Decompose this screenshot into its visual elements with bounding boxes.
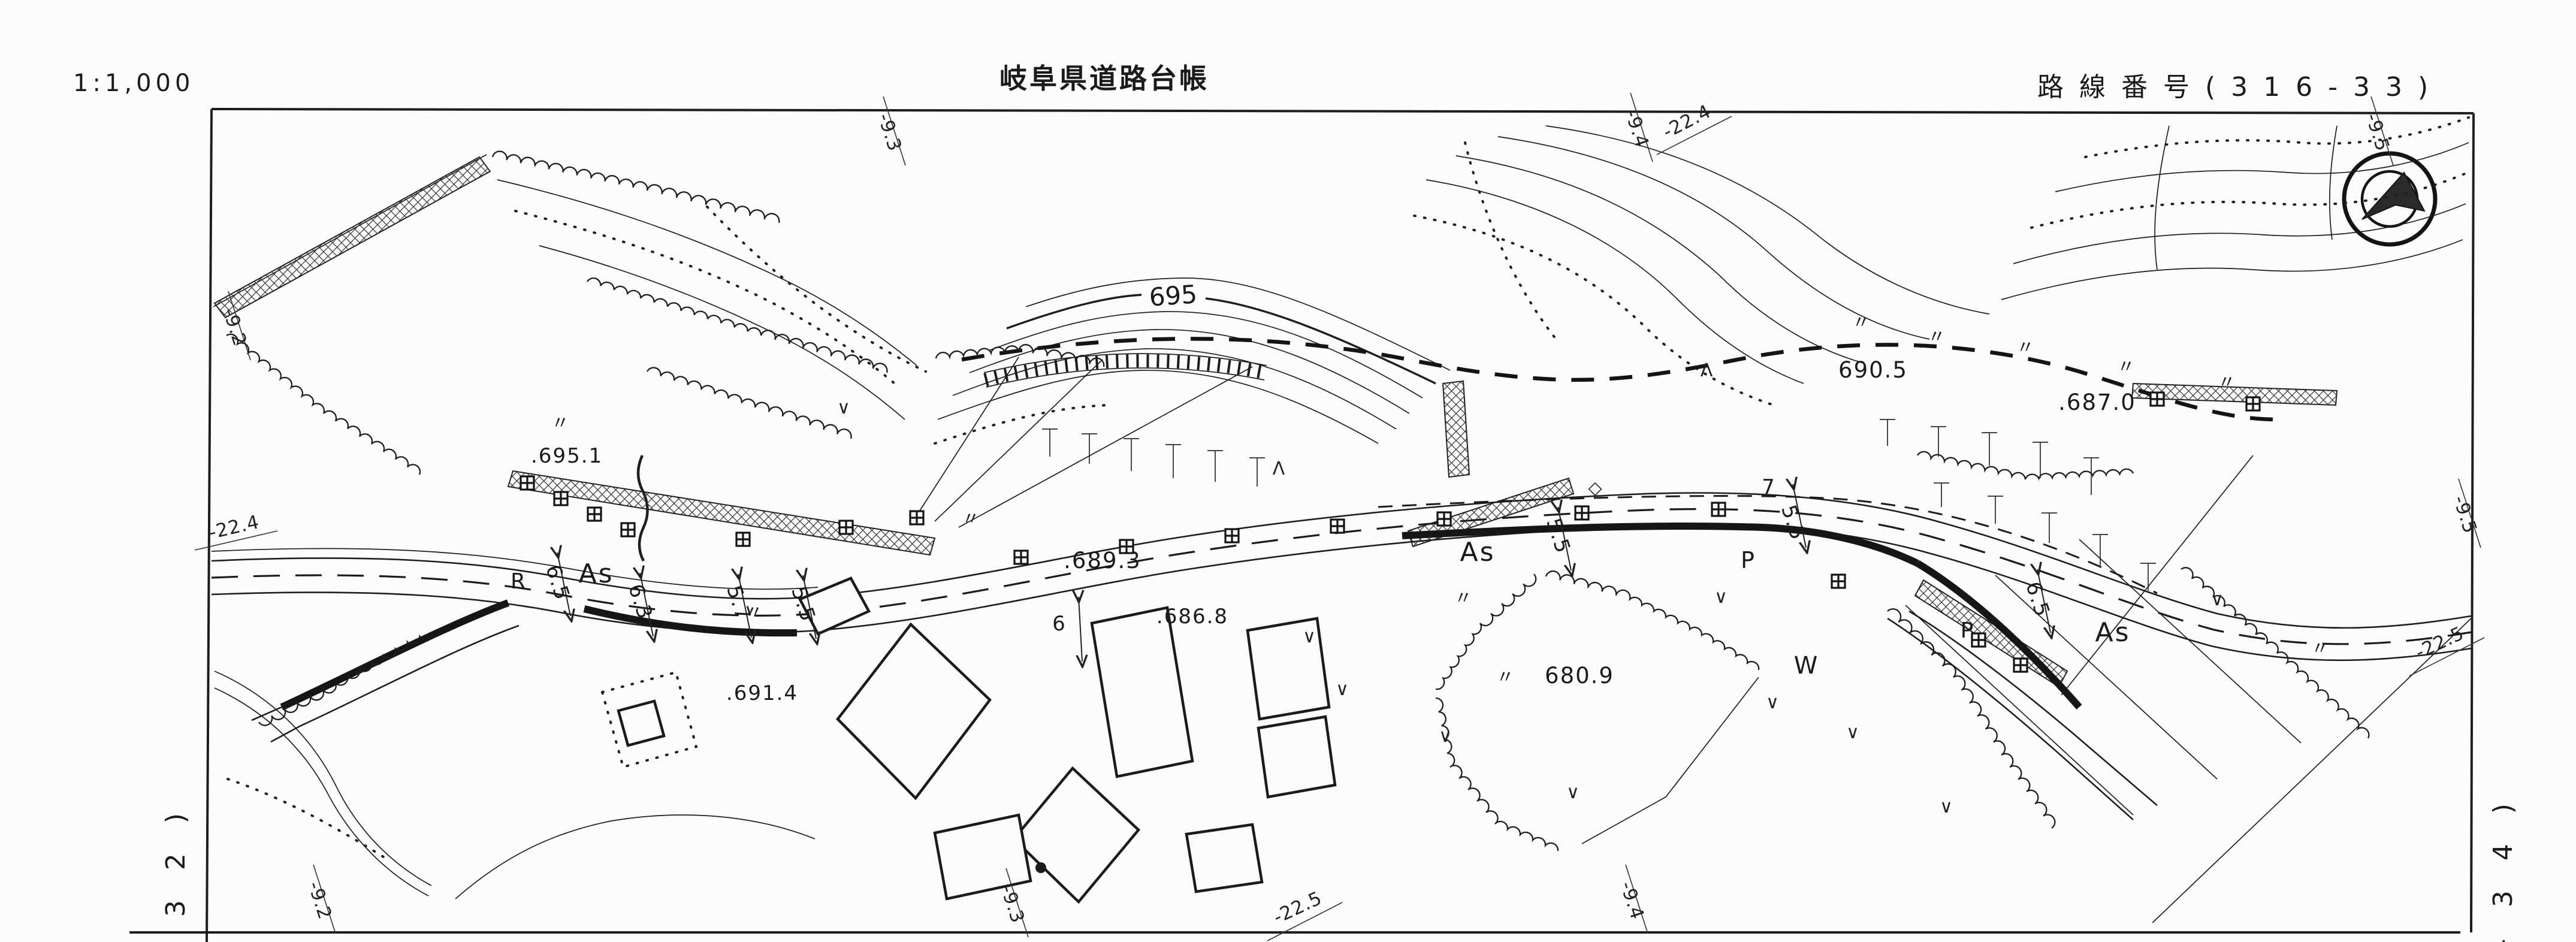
grass-symbol: ∨: [1439, 726, 1452, 747]
road-register-sheet: 1:1,000 岐阜県道路台帳 路線番号(316-33): [0, 0, 2576, 942]
hachure-mark: [2092, 535, 2108, 566]
post-symbol: [1014, 551, 1028, 564]
north-arrow-icon: [2344, 153, 2435, 244]
grid-label: -9.3: [996, 883, 1028, 926]
sheet-ref-right: − 3 4 ): [2488, 793, 2518, 942]
grid-label: -9.5: [2448, 493, 2481, 536]
grass-symbol: ∨: [1566, 782, 1580, 803]
paddy-symbol: 〃: [1496, 667, 1514, 688]
paddy-symbol: 〃: [2218, 372, 2236, 393]
post-symbol: [588, 508, 601, 521]
grass-symbol: ∨: [1303, 626, 1316, 647]
vegetation-symbols: ∨∨∨∨∨∨∨∨∨∨〃〃〃〃〃〃〃〃〃〃〃ΛΛ◇: [551, 312, 2329, 817]
paddy-symbol: 〃: [745, 602, 763, 623]
hachure-mark: [1165, 445, 1181, 478]
post-symbol: [621, 523, 635, 536]
post-symbol: [2246, 397, 2260, 410]
grid-label: -9.5: [2361, 111, 2393, 154]
map-canvas: 1:1,000 岐阜県道路台帳 路線番号(316-33): [0, 0, 2576, 942]
grid-label: -22.4: [1659, 101, 1714, 143]
paddy-symbol: 〃: [551, 413, 569, 434]
post-symbol: [1712, 503, 1725, 516]
hachure-mark: [2033, 442, 2048, 478]
hedge-line: [1436, 574, 1536, 689]
hedge-line: [1436, 698, 1558, 851]
post-symbol: [736, 533, 750, 546]
hedge-line: [227, 334, 420, 475]
scale-label: 1:1,000: [73, 70, 194, 97]
grid-label: -9.2: [303, 879, 336, 922]
surface-label-as: As: [578, 558, 614, 589]
grid-coordinate-labels: -9.3 -9.4 -22.4 -9.5 -9.2 -22.4 -9.5 -22…: [207, 101, 2481, 929]
grass-symbol: ∨: [1846, 722, 1859, 743]
post-symbol: [1832, 575, 1845, 588]
map-neatlines: [213, 155, 2471, 923]
hachure-mark: [2083, 458, 2099, 495]
post-symbol: [1575, 506, 1589, 520]
grid-label: -9.4: [1620, 107, 1653, 150]
grass-symbol: ∨: [1336, 679, 1349, 700]
hachure-mark: [1982, 433, 1997, 466]
grid-label: -22.5: [1270, 887, 1325, 929]
grass-symbol: ∨: [1766, 692, 1779, 713]
grid-label: -22.4: [207, 511, 261, 544]
paddy-symbol: 〃: [2016, 337, 2034, 358]
sheet-ref-left: − 3 2 ): [161, 802, 191, 942]
grass-symbol: ∨: [1714, 587, 1728, 608]
hachure-mark: [1931, 427, 1946, 457]
paddy-symbol: 〃: [1852, 312, 1870, 333]
post-symbol: [1120, 540, 1133, 553]
hachure-mark: [1124, 439, 1139, 471]
post-symbol: [1225, 529, 1239, 542]
spot-elevation: 690.5: [1838, 357, 1908, 383]
road-width: 5.5: [786, 584, 820, 625]
spot-elevation: .691.4: [726, 681, 798, 705]
hachure-mark: [1249, 458, 1265, 487]
surface-label-as: As: [2095, 617, 2130, 648]
road-width: 5.5: [1541, 515, 1575, 557]
post-symbol: [554, 492, 567, 505]
slope-hachures: [1042, 419, 2156, 591]
page-title: 岐阜県道路台帳: [999, 62, 1209, 95]
spot-elevation: 680.9: [1545, 663, 1614, 689]
spot-elevation: .687.0: [2058, 390, 2136, 415]
paddy-symbol: 〃: [2311, 638, 2329, 659]
post-symbol: [2014, 659, 2027, 672]
post-symbol: [1972, 633, 1985, 647]
grid-label: -22.5: [2412, 623, 2468, 664]
hachure-mark: [1042, 429, 1058, 457]
hachure-mark: [1988, 496, 2003, 524]
grass-symbol: ∨: [837, 397, 850, 418]
hachure-mark: [1207, 451, 1223, 482]
post-symbol: [910, 511, 923, 524]
route-number-label: 路線番号(316-33): [2037, 72, 2444, 102]
hachure-mark: [1880, 419, 1895, 446]
road-width: 6.5: [2021, 579, 2055, 620]
paddy-symbol: 〃: [962, 509, 980, 530]
post-symbol: [1438, 512, 1451, 526]
conifer-symbol: Λ: [1701, 360, 1713, 381]
surface-label-p: P: [1741, 547, 1756, 573]
post-symbol: [1331, 520, 1344, 533]
surface-label-as: As: [1460, 537, 1495, 567]
hedge-line: [587, 278, 887, 373]
hedge-line: [2181, 567, 2369, 738]
grid-label: -9.3: [873, 111, 905, 154]
hedge-line: [647, 367, 851, 439]
hedge-line: [1917, 452, 2133, 479]
spot-elevation: .695.1: [531, 444, 603, 468]
post-symbol: [2151, 393, 2164, 406]
road-width: 5.5: [1776, 502, 1810, 544]
hachure-mark: [2042, 513, 2057, 543]
hedge-line: [1546, 571, 1759, 670]
paddy-symbol: 〃: [2117, 357, 2135, 378]
surface-label-w: W: [1794, 652, 1820, 680]
grass-symbol: ∨: [2210, 589, 2224, 610]
road-width: 6: [1052, 612, 1067, 636]
grid-label: -9.2: [218, 306, 250, 349]
post-symbol: [521, 476, 534, 490]
conifer-symbol: Λ: [1273, 458, 1285, 479]
frame-border: [129, 109, 2474, 942]
gate-symbol: ◇: [1588, 478, 1602, 499]
hedge-line: [493, 152, 779, 223]
point-symbol: [1035, 862, 1046, 873]
spot-elevation: .686.8: [1156, 605, 1228, 629]
road-width: 7: [1762, 475, 1776, 499]
contour-label: 695: [1148, 279, 1198, 312]
hachure-mark: [1934, 483, 1949, 507]
post-symbol: [839, 521, 853, 534]
paddy-symbol: 〃: [1454, 588, 1472, 609]
branch-roads: [252, 603, 2157, 820]
surface-label-r: R: [511, 569, 527, 594]
grid-label: -9.4: [1615, 879, 1648, 922]
grass-symbol: ∨: [1940, 796, 1953, 817]
hedge-line: [936, 345, 1104, 367]
paddy-symbol: 〃: [1928, 327, 1946, 348]
